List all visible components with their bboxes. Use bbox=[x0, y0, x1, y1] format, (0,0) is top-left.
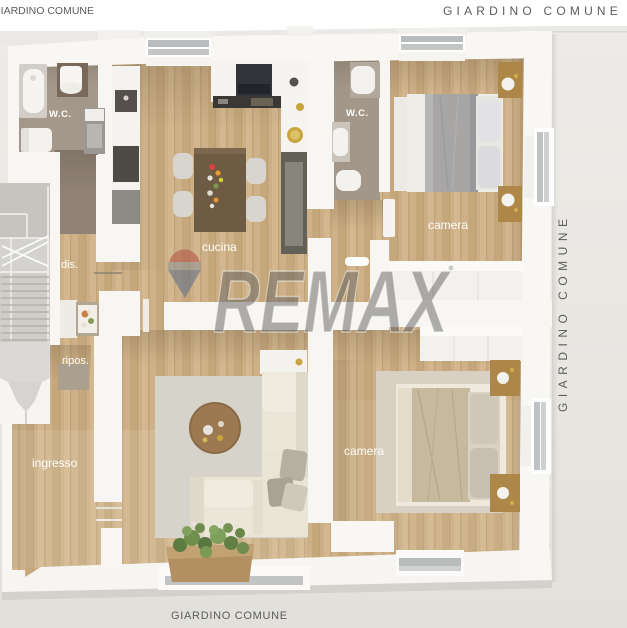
svg-text:GIARDINO COMUNE: GIARDINO COMUNE bbox=[443, 4, 622, 18]
svg-text:W.C.: W.C. bbox=[49, 109, 72, 120]
svg-text:GIARDINO COMUNE: GIARDINO COMUNE bbox=[171, 610, 288, 622]
svg-text:ingresso: ingresso bbox=[32, 456, 78, 470]
svg-text:cucina: cucina bbox=[202, 240, 237, 254]
svg-text:ripos.: ripos. bbox=[62, 355, 89, 367]
svg-text:W.C.: W.C. bbox=[346, 108, 369, 119]
svg-text:GIARDINO COMUNE: GIARDINO COMUNE bbox=[556, 213, 570, 412]
svg-text:GIARDINO COMUNE: GIARDINO COMUNE bbox=[0, 5, 94, 17]
svg-text:dis.: dis. bbox=[61, 259, 78, 271]
svg-text:camera: camera bbox=[344, 444, 384, 458]
svg-text:camera: camera bbox=[428, 218, 468, 232]
svg-text:REMAX: REMAX bbox=[213, 252, 452, 351]
